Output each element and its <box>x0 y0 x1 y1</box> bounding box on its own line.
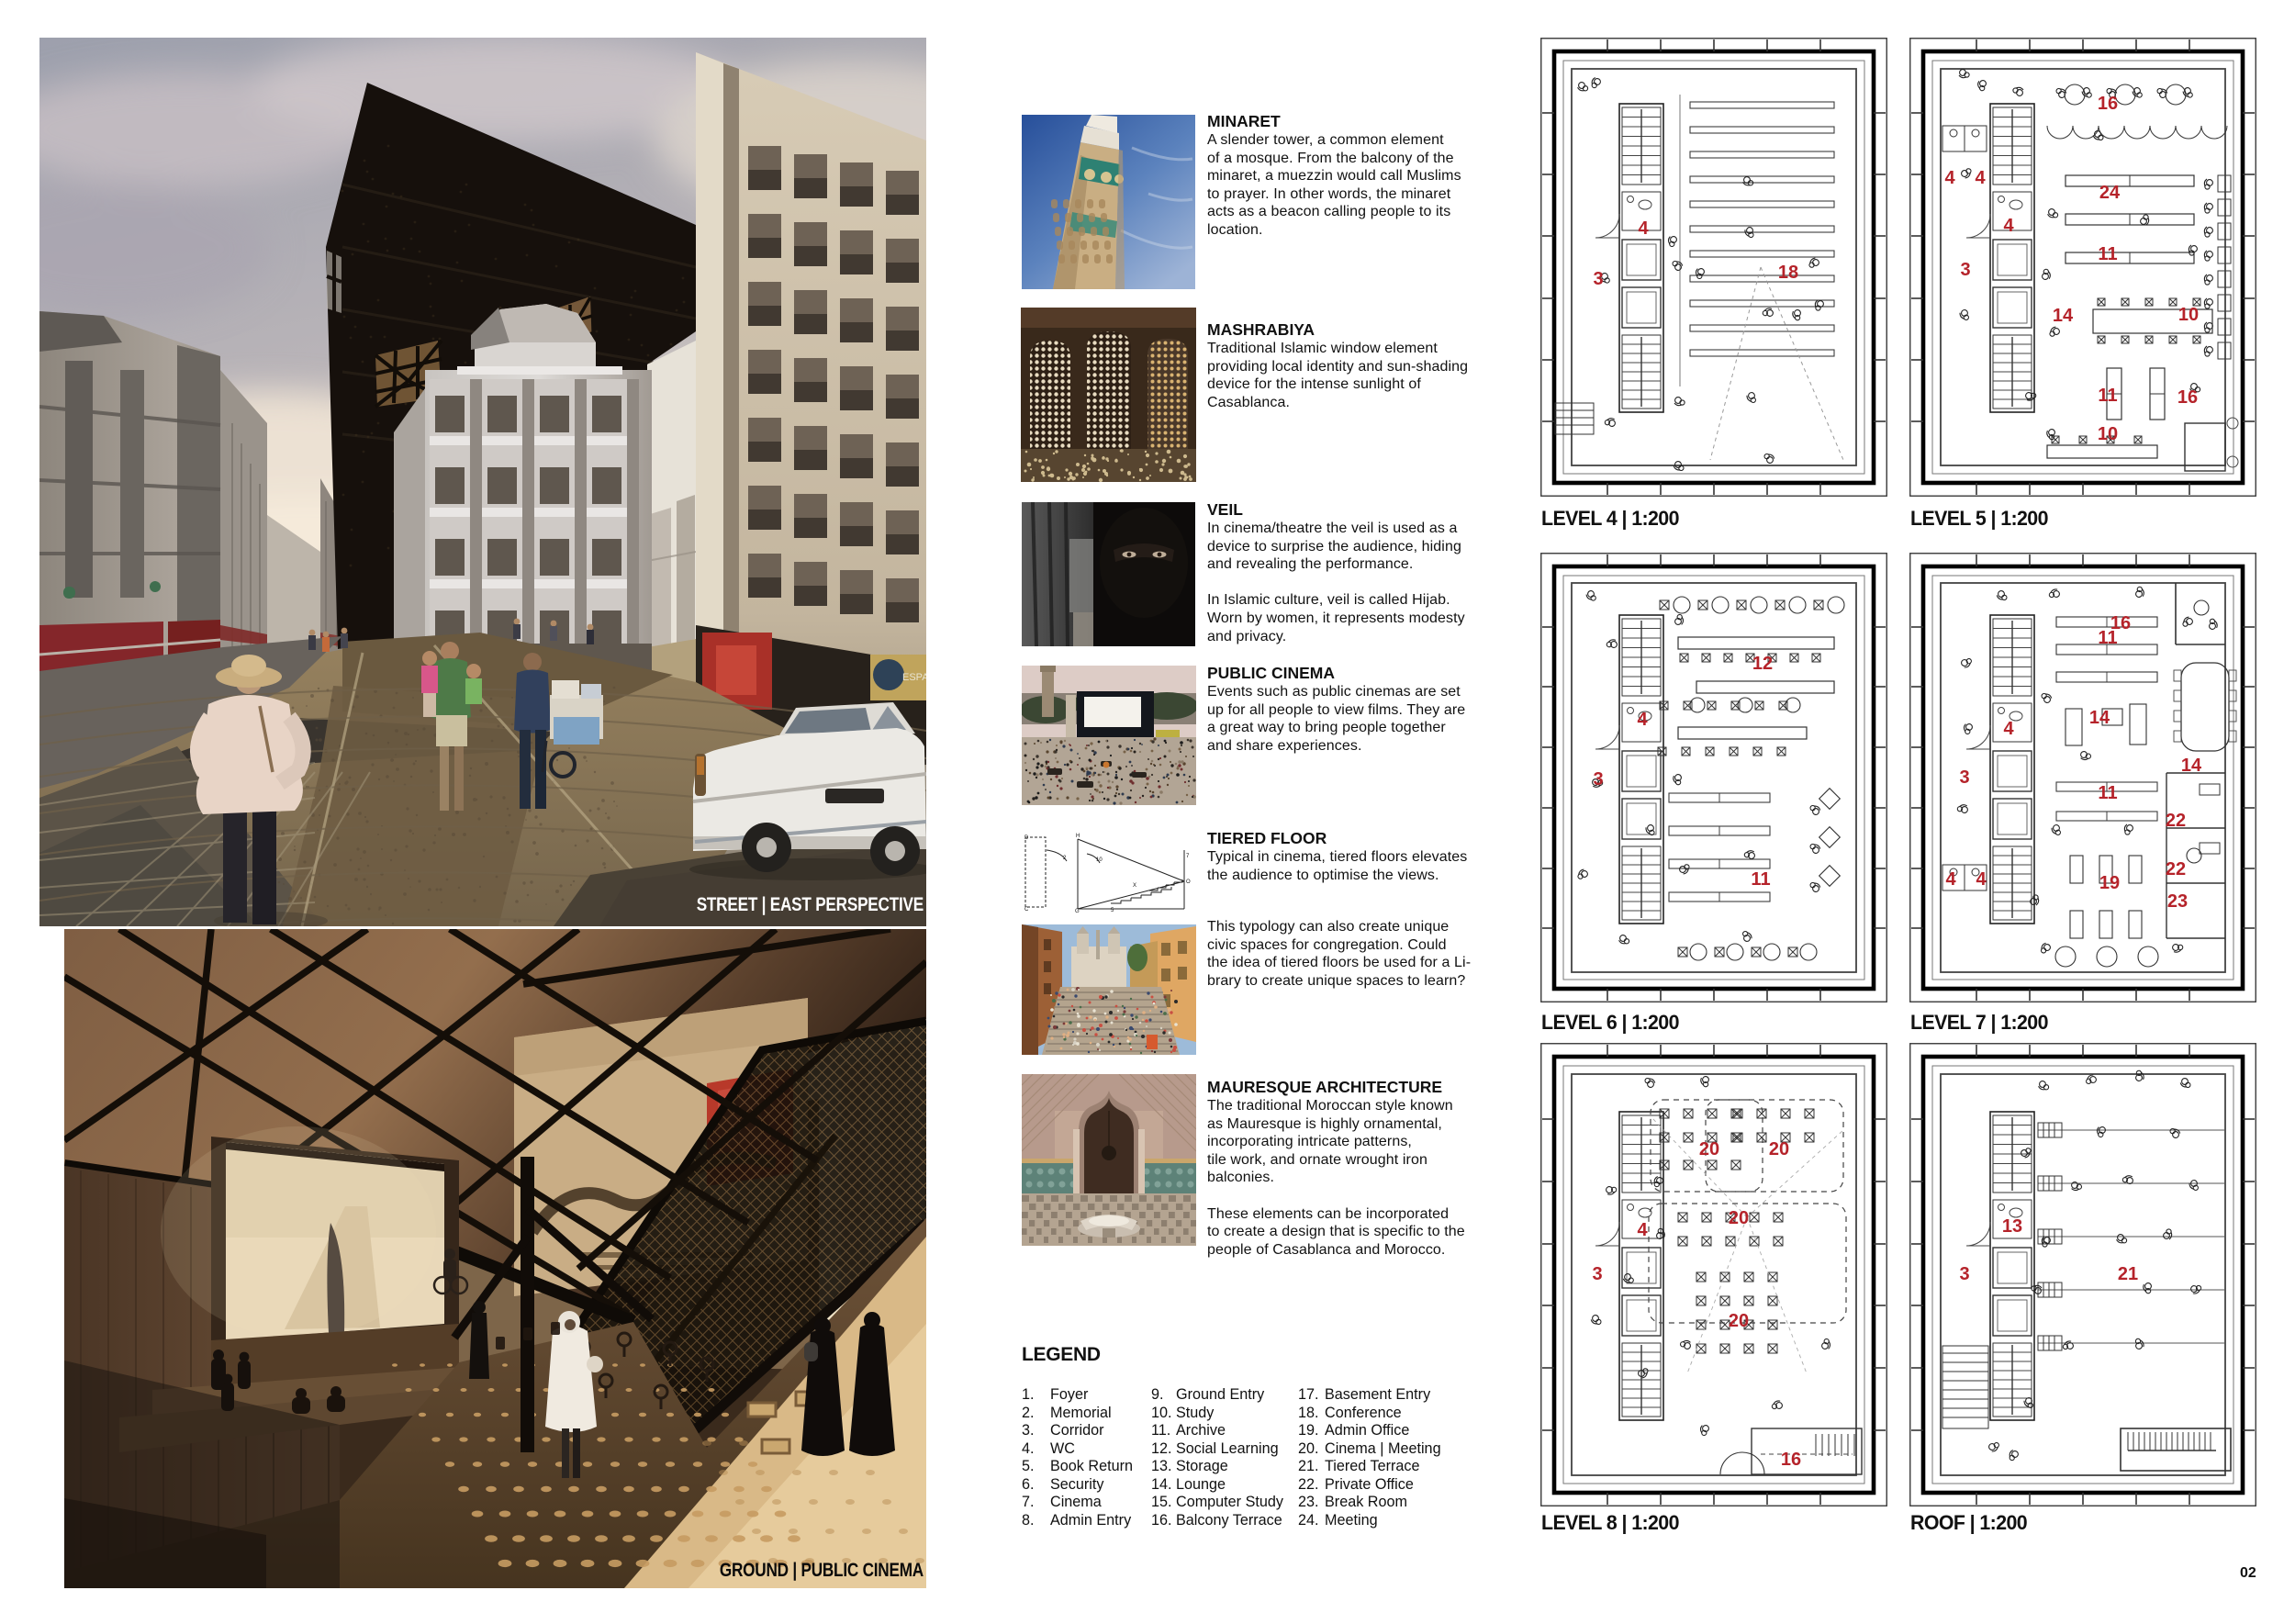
svg-text:4: 4 <box>1945 869 1956 890</box>
svg-text:4: 4 <box>1944 168 1955 188</box>
svg-text:16: 16 <box>2098 94 2118 114</box>
svg-text:22: 22 <box>2166 859 2186 879</box>
svg-text:20: 20 <box>1769 1139 1789 1159</box>
svg-text:20: 20 <box>1699 1139 1719 1159</box>
svg-text:3: 3 <box>1959 767 1969 788</box>
svg-text:19: 19 <box>2099 873 2120 893</box>
svg-text:3: 3 <box>1592 1264 1602 1284</box>
svg-text:4: 4 <box>1976 869 1987 890</box>
svg-text:G: G <box>1075 909 1080 913</box>
svg-text:24: 24 <box>2099 183 2121 203</box>
svg-text:X: X <box>1133 883 1136 889</box>
svg-text:11: 11 <box>2098 244 2117 264</box>
svg-text:16: 16 <box>2177 387 2198 408</box>
svg-text:3: 3 <box>1593 269 1603 289</box>
svg-text:16: 16 <box>1781 1450 1801 1470</box>
svg-text:14: 14 <box>2053 306 2074 326</box>
svg-text:10: 10 <box>1096 857 1103 863</box>
svg-text:20: 20 <box>1729 1311 1749 1331</box>
svg-text:22: 22 <box>2166 811 2186 831</box>
svg-text:14: 14 <box>2181 756 2202 776</box>
svg-text:4: 4 <box>1637 710 1648 730</box>
svg-text:3: 3 <box>1593 769 1603 790</box>
svg-text:4: 4 <box>1975 168 1986 188</box>
svg-text:C: C <box>1024 907 1029 913</box>
svg-text:4: 4 <box>2003 216 2014 236</box>
svg-text:11: 11 <box>2098 628 2117 648</box>
svg-text:11: 11 <box>1751 869 1770 890</box>
svg-text:13: 13 <box>2002 1216 2022 1237</box>
svg-text:4: 4 <box>1638 218 1649 239</box>
svg-text:21: 21 <box>2118 1264 2138 1284</box>
svg-text:12: 12 <box>1752 654 1773 674</box>
svg-text:4: 4 <box>2003 719 2014 739</box>
svg-text:4: 4 <box>1637 1220 1648 1240</box>
svg-text:10: 10 <box>2178 305 2199 325</box>
svg-text:11: 11 <box>2098 386 2117 406</box>
svg-text:20: 20 <box>1729 1208 1749 1228</box>
svg-text:3: 3 <box>1959 1264 1969 1284</box>
svg-text:18: 18 <box>1778 263 1798 283</box>
svg-text:O: O <box>1186 879 1191 885</box>
svg-text:11: 11 <box>2098 783 2117 803</box>
svg-text:14: 14 <box>2089 708 2110 728</box>
svg-text:3: 3 <box>1960 260 1970 280</box>
svg-text:10: 10 <box>2098 424 2118 444</box>
svg-text:D: D <box>1024 835 1029 841</box>
svg-text:H: H <box>1076 834 1080 839</box>
svg-text:23: 23 <box>2167 891 2188 912</box>
svg-text:ESPA: ESPA <box>902 672 926 683</box>
